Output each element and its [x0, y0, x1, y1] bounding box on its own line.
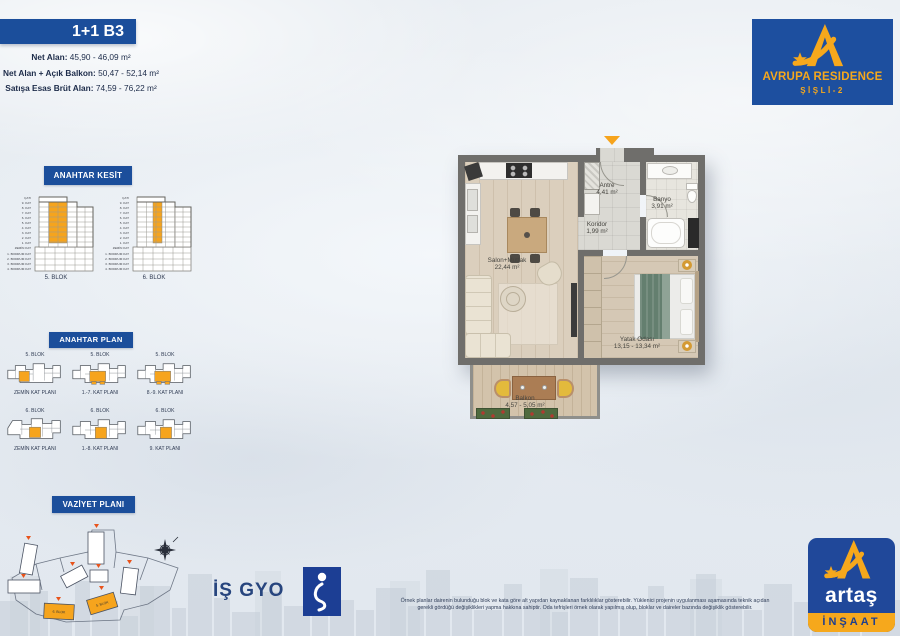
- unit-area-list: Net Alan: 45,90 - 46,09 m² Net Alan + Aç…: [0, 50, 162, 97]
- disclaimer-line-1: Örnek planlar dairenin bulunduğu blok ve…: [285, 598, 885, 605]
- key-plan-cell: 6. BLOK 9. KAT PLANI: [134, 408, 196, 452]
- sink-basin: [467, 189, 478, 211]
- key-plan-shape: [71, 415, 129, 445]
- balcony-rail: [470, 365, 473, 419]
- key-plan-block: 5. BLOK: [134, 352, 196, 358]
- key-plan-cell: 5. BLOK 8.-9. KAT PLANI: [134, 352, 196, 396]
- key-plan-cell: 5. BLOK 1.-7. KAT PLANI: [69, 352, 131, 396]
- plate: [520, 385, 525, 390]
- bed-blanket: [640, 274, 662, 339]
- project-logo: AVRUPA RESIDENCE ŞİŞLİ-2: [752, 19, 893, 105]
- project-location: ŞİŞLİ-2: [752, 86, 893, 95]
- section-title-anahtar-kesit: ANAHTAR KESİT: [44, 166, 132, 185]
- key-plan-shape: [6, 415, 64, 445]
- wall: [458, 358, 705, 365]
- block-label: 5. BLOK: [16, 275, 96, 281]
- floor-plan: Antre 4,41 m² Banyo 3,91 m² Koridor 1,99…: [450, 133, 720, 428]
- key-plan-block: 6. BLOK: [4, 408, 66, 414]
- room-area: 4,57 - 5,05 m²: [495, 402, 555, 409]
- entry-step: [600, 148, 624, 162]
- room-label-koridor: Koridor 1,99 m²: [567, 221, 627, 235]
- bathtub-inner: [651, 222, 681, 244]
- elevation-diagram: [131, 195, 193, 273]
- compass-rose: [154, 537, 178, 561]
- area-value: 45,90 - 46,09 m²: [70, 52, 131, 62]
- bed-blanket-fold: [662, 274, 670, 339]
- section-title-text: ANAHTAR KESİT: [54, 171, 123, 180]
- section-title-text: VAZİYET PLANI: [63, 500, 125, 509]
- lamp: [682, 341, 692, 351]
- area-label: Satışa Esas Brüt Alan:: [5, 83, 93, 93]
- room-area: 13,15 - 13,34 m²: [602, 343, 672, 350]
- unit-type-label: 1+1 B3: [72, 23, 124, 40]
- wall: [596, 148, 600, 155]
- room-area: 22,44 m²: [475, 264, 539, 271]
- site-block-label: 6. BLOK: [52, 610, 66, 615]
- room-name: Banyo: [632, 196, 692, 203]
- section-title-vaziyet-plani: VAZİYET PLANI: [52, 496, 135, 513]
- dining-chair: [510, 208, 520, 217]
- stove: [506, 163, 532, 178]
- room-name: Koridor: [567, 221, 627, 228]
- room-name: Antre: [577, 182, 637, 189]
- table-centerpiece: [524, 232, 530, 238]
- area-line: Net Alan: 45,90 - 46,09 m²: [0, 50, 162, 66]
- area-line: Net Alan + Açık Balkon: 50,47 - 52,14 m²: [0, 66, 162, 82]
- planter-box: [476, 408, 510, 419]
- wall: [624, 155, 705, 162]
- plate: [542, 385, 547, 390]
- room-area: 1,99 m²: [567, 228, 627, 235]
- elevation-diagram: [33, 195, 95, 273]
- wall: [624, 148, 654, 155]
- key-plan-floor: ZEMİN KAT PLANI: [4, 446, 66, 452]
- key-plan-cell: 6. BLOK 1.-8. KAT PLANI: [69, 408, 131, 452]
- coffee-table-inner: [506, 292, 520, 306]
- artas-logo: artaş İNŞAAT: [808, 538, 895, 632]
- wall: [698, 155, 705, 365]
- disclaimer: Örnek planlar dairenin bulunduğu blok ve…: [285, 598, 885, 612]
- bed-headboard: [695, 271, 699, 342]
- dining-chair: [530, 208, 540, 217]
- key-plan-shape: [136, 359, 194, 389]
- avrupa-a-icon: [791, 24, 855, 70]
- pillow: [680, 278, 693, 304]
- key-plan-floor: ZEMİN KAT PLANI: [4, 390, 66, 396]
- key-plan-floor: 9. KAT PLANI: [134, 446, 196, 452]
- sink-basin: [467, 215, 478, 233]
- key-plan-floor: 1.-8. KAT PLANI: [69, 446, 131, 452]
- wall: [627, 250, 698, 256]
- area-value: 74,59 - 76,22 m²: [96, 83, 157, 93]
- sofa: [465, 275, 492, 335]
- key-plan-shape: [6, 359, 64, 389]
- section-title-text: ANAHTAR PLAN: [59, 335, 122, 344]
- room-label-yatak-odasi: Yatak Odası 13,15 - 13,34 m²: [602, 336, 672, 350]
- key-plan-shape: [71, 359, 129, 389]
- lamp: [682, 260, 692, 270]
- area-label: Net Alan + Açık Balkon:: [3, 68, 96, 78]
- toilet-tank: [686, 183, 698, 190]
- key-plan-floor: 1.-7. KAT PLANI: [69, 390, 131, 396]
- wardrobe: [584, 256, 602, 358]
- key-plan-block: 6. BLOK: [134, 408, 196, 414]
- floor-labels: ÇATI9. KAT8. KAT7. KAT6. KAT5. KAT4. KAT…: [104, 196, 129, 272]
- key-plan-cell: 6. BLOK ZEMİN KAT PLANI: [4, 408, 66, 452]
- wall: [458, 155, 600, 162]
- room-label-antre: Antre 4,41 m²: [577, 182, 637, 196]
- balcony-rail: [597, 365, 600, 419]
- floor-labels: ÇATI9. KAT8. KAT7. KAT6. KAT5. KAT4. KAT…: [6, 196, 31, 272]
- key-plan-block: 5. BLOK: [4, 352, 66, 358]
- bath-basin: [662, 166, 678, 175]
- block-label: 6. BLOK: [114, 275, 194, 281]
- site-plan: 6. BLOK 5. BLOK: [2, 520, 194, 634]
- balcony-chair: [557, 379, 574, 398]
- room-label-balkon: Balkon 4,57 - 5,05 m²: [495, 395, 555, 409]
- room-label-salon-mutfak: Salon+Mutfak 22,44 m²: [475, 257, 539, 271]
- key-plan-floor: 8.-9. KAT PLANI: [134, 390, 196, 396]
- key-plan-cell: 5. BLOK ZEMİN KAT PLANI: [4, 352, 66, 396]
- wall: [458, 155, 465, 365]
- room-name: Balkon: [495, 395, 555, 402]
- key-plan-shape: [136, 415, 194, 445]
- wall: [640, 217, 646, 250]
- room-label-banyo: Banyo 3,91 m²: [632, 196, 692, 210]
- unit-type-badge: 1+1 B3: [0, 19, 136, 44]
- project-name: AVRUPA RESIDENCE: [752, 71, 893, 83]
- room-name: Salon+Mutfak: [475, 257, 539, 264]
- key-plan-grid: 5. BLOK ZEMİN KAT PLANI 5. BLOK 1.-7. KA…: [2, 352, 198, 464]
- area-label: Net Alan:: [31, 52, 67, 62]
- room-name: Yatak Odası: [602, 336, 672, 343]
- sofa-chaise: [465, 333, 511, 358]
- wall: [640, 162, 646, 195]
- area-value: 50,47 - 52,14 m²: [98, 68, 159, 78]
- planter-box: [524, 408, 558, 419]
- section-title-anahtar-plan: ANAHTAR PLAN: [49, 332, 133, 348]
- key-plan-block: 5. BLOK: [69, 352, 131, 358]
- room-area: 4,41 m²: [577, 189, 637, 196]
- entrance-marker-icon: [604, 136, 620, 145]
- building-section-5-blok: ÇATI9. KAT8. KAT7. KAT6. KAT5. KAT4. KAT…: [6, 195, 96, 290]
- bath-mat: [688, 218, 699, 248]
- artas-a-icon: [824, 540, 880, 582]
- room-area: 3,91 m²: [632, 203, 692, 210]
- tv-unit: [571, 283, 577, 337]
- area-line: Satışa Esas Brüt Alan: 74,59 - 76,22 m²: [0, 81, 162, 97]
- key-section-diagrams: ÇATI9. KAT8. KAT7. KAT6. KAT5. KAT4. KAT…: [6, 195, 194, 290]
- key-plan-block: 6. BLOK: [69, 408, 131, 414]
- building-section-6-blok: ÇATI9. KAT8. KAT7. KAT6. KAT5. KAT4. KAT…: [104, 195, 194, 290]
- brochure-page: 1+1 B3 Net Alan: 45,90 - 46,09 m² Net Al…: [0, 0, 900, 636]
- disclaimer-line-2: gerekli gördüğü değişiklikleri yapma hak…: [285, 605, 885, 612]
- pillow: [680, 309, 693, 335]
- artas-insaat-band: İNŞAAT: [808, 613, 895, 632]
